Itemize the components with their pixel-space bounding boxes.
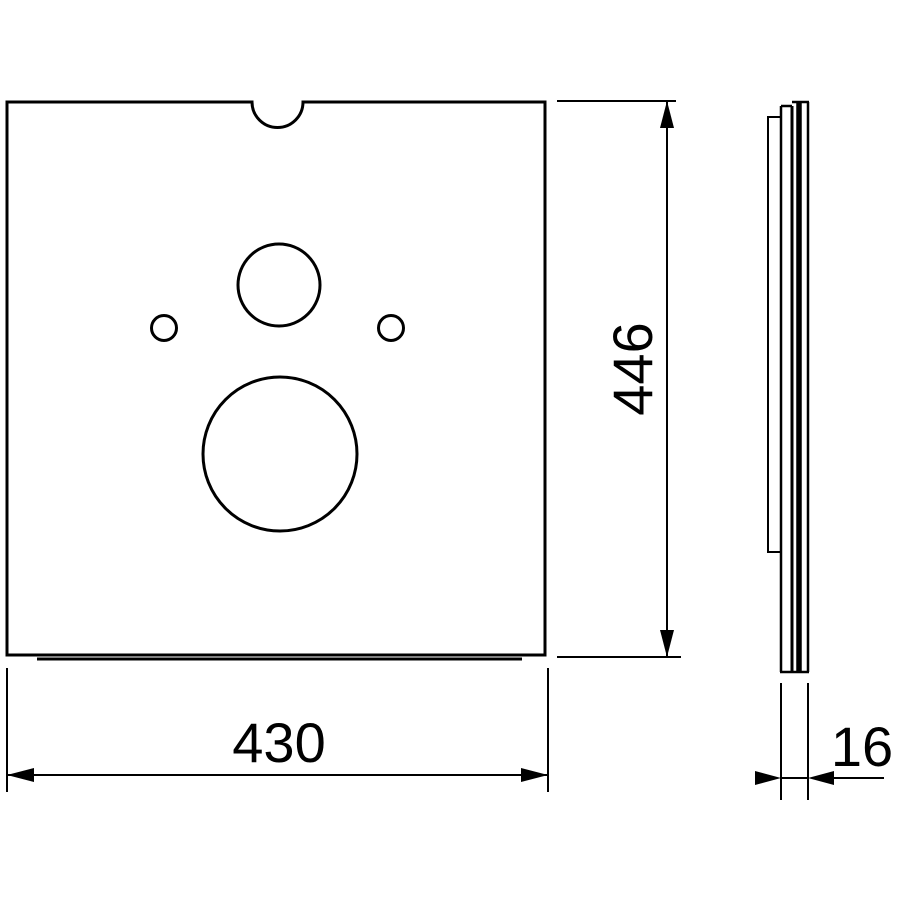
hole-large-bottom [203, 377, 357, 531]
hole-medium-top [238, 244, 320, 326]
thickness-arrow-left [755, 771, 781, 785]
technical-drawing: 446 430 16 [0, 0, 900, 900]
side-view-plate [768, 102, 809, 672]
hole-small-left [152, 316, 177, 341]
drawing-canvas: 446 430 16 [0, 0, 900, 900]
width-arrow-left [7, 768, 34, 782]
front-view-plate [7, 102, 545, 659]
width-arrow-right [521, 768, 548, 782]
width-dim-label: 430 [232, 711, 325, 774]
hole-small-right [379, 316, 404, 341]
height-arrow-bottom [660, 630, 674, 657]
thickness-dim-label: 16 [831, 715, 893, 778]
side-backing-layer [768, 117, 781, 552]
height-dim-label: 446 [601, 322, 664, 415]
height-arrow-top [660, 101, 674, 128]
